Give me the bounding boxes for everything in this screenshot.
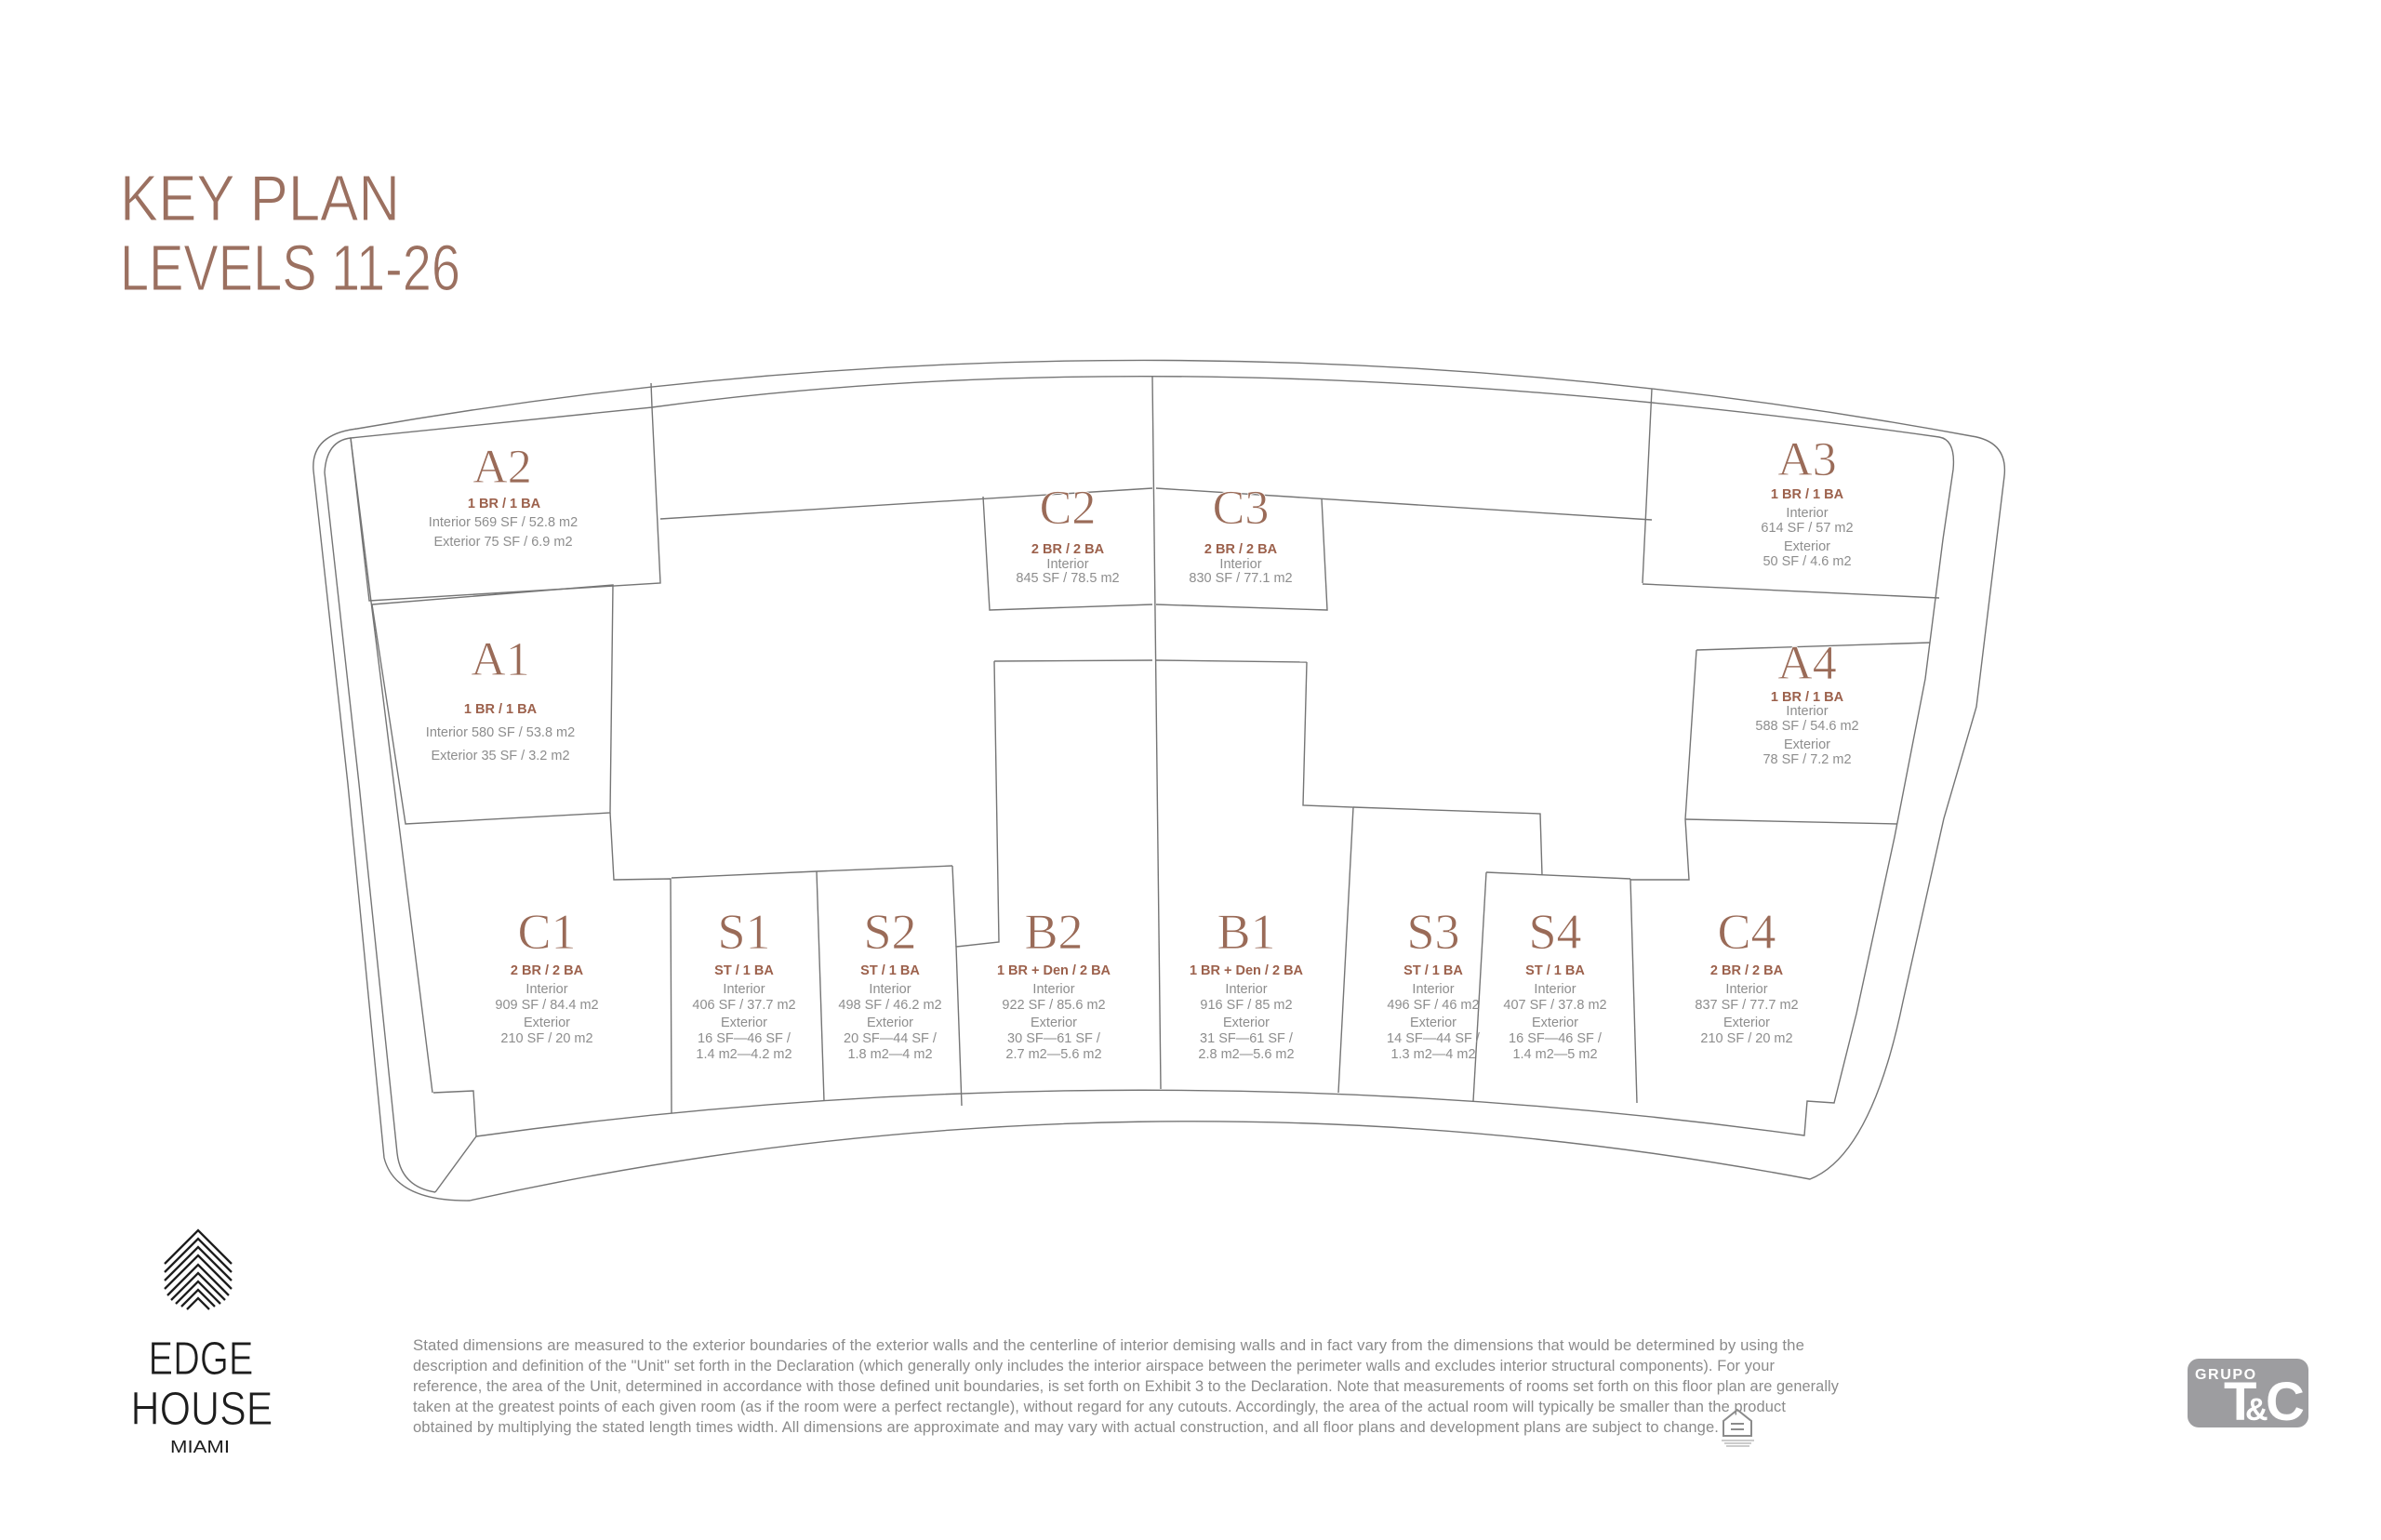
svg-text:Interior: Interior: [723, 982, 765, 997]
svg-text:Exterior: Exterior: [721, 1016, 767, 1030]
svg-text:C1: C1: [517, 904, 576, 960]
svg-text:2 BR / 2 BA: 2 BR / 2 BA: [1710, 963, 1784, 978]
svg-text:50 SF / 4.6 m2: 50 SF / 4.6 m2: [1762, 554, 1851, 569]
svg-text:B1: B1: [1217, 904, 1275, 960]
svg-text:1 BR / 1 BA: 1 BR / 1 BA: [468, 497, 541, 511]
svg-text:2.8 m2—5.6 m2: 2.8 m2—5.6 m2: [1198, 1047, 1294, 1062]
svg-text:Interior: Interior: [869, 982, 911, 997]
svg-text:1.4 m2—5 m2: 1.4 m2—5 m2: [1512, 1047, 1597, 1062]
svg-text:Exterior 75 SF / 6.9 m2: Exterior 75 SF / 6.9 m2: [433, 535, 572, 550]
svg-text:1 BR / 1 BA: 1 BR / 1 BA: [1771, 487, 1844, 502]
svg-text:A1: A1: [471, 633, 530, 686]
svg-text:S4: S4: [1528, 904, 1581, 960]
svg-text:614 SF / 57 m2: 614 SF / 57 m2: [1761, 521, 1853, 536]
svg-text:ST / 1 BA: ST / 1 BA: [1525, 963, 1585, 978]
svg-text:16 SF—46 SF /: 16 SF—46 SF /: [1509, 1031, 1603, 1046]
svg-text:Exterior 35 SF / 3.2 m2: Exterior 35 SF / 3.2 m2: [431, 749, 569, 763]
svg-text:498 SF / 46.2 m2: 498 SF / 46.2 m2: [838, 998, 941, 1013]
svg-text:HOUSE: HOUSE: [131, 1382, 273, 1435]
svg-text:C3: C3: [1213, 482, 1270, 535]
svg-text:Exterior: Exterior: [1031, 1016, 1077, 1030]
svg-text:Interior 569 SF / 52.8 m2: Interior 569 SF / 52.8 m2: [429, 515, 578, 530]
svg-text:830 SF / 77.1 m2: 830 SF / 77.1 m2: [1189, 571, 1292, 586]
svg-text:496 SF / 46 m2: 496 SF / 46 m2: [1387, 998, 1479, 1013]
svg-text:Exterior: Exterior: [1723, 1016, 1770, 1030]
svg-text:1 BR / 1 BA: 1 BR / 1 BA: [464, 702, 538, 717]
svg-text:Exterior: Exterior: [1223, 1016, 1270, 1030]
svg-text:2 BR / 2 BA: 2 BR / 2 BA: [1031, 542, 1105, 557]
svg-text:31 SF—61 SF /: 31 SF—61 SF /: [1200, 1031, 1294, 1046]
svg-text:1.3 m2—4 m2: 1.3 m2—4 m2: [1390, 1047, 1475, 1062]
svg-text:reference, the area of the Uni: reference, the area of the Unit, determi…: [413, 1378, 1840, 1395]
svg-text:20 SF—44 SF /: 20 SF—44 SF /: [844, 1031, 938, 1046]
svg-text:Stated dimensions are measured: Stated dimensions are measured to the ex…: [413, 1337, 1804, 1354]
svg-text:1 BR + Den / 2 BA: 1 BR + Den / 2 BA: [997, 963, 1111, 978]
svg-text:ST / 1 BA: ST / 1 BA: [1403, 963, 1463, 978]
svg-text:2.7 m2—5.6 m2: 2.7 m2—5.6 m2: [1005, 1047, 1101, 1062]
svg-text:Interior: Interior: [1219, 557, 1261, 572]
svg-text:Exterior: Exterior: [1410, 1016, 1457, 1030]
svg-text:14 SF—44 SF /: 14 SF—44 SF /: [1387, 1031, 1481, 1046]
svg-text:Interior: Interior: [525, 982, 567, 997]
svg-text:845 SF / 78.5 m2: 845 SF / 78.5 m2: [1016, 571, 1119, 586]
svg-text:C2: C2: [1040, 482, 1097, 535]
svg-text:MIAMI: MIAMI: [170, 1438, 230, 1456]
svg-text:Interior 580 SF / 53.8 m2: Interior 580 SF / 53.8 m2: [426, 725, 575, 740]
svg-text:916 SF / 85 m2: 916 SF / 85 m2: [1200, 998, 1292, 1013]
svg-text:1 BR + Den / 2 BA: 1 BR + Den / 2 BA: [1190, 963, 1304, 978]
svg-text:A3: A3: [1777, 433, 1837, 486]
svg-text:2 BR / 2 BA: 2 BR / 2 BA: [1204, 542, 1278, 557]
svg-text:C: C: [2266, 1372, 2305, 1432]
svg-text:taken at the greatest points o: taken at the greatest points of each giv…: [413, 1399, 1786, 1415]
svg-text:909 SF / 84.4 m2: 909 SF / 84.4 m2: [495, 998, 598, 1013]
svg-text:Interior: Interior: [1534, 982, 1576, 997]
svg-text:EDGE: EDGE: [149, 1332, 254, 1385]
svg-text:210 SF / 20 m2: 210 SF / 20 m2: [500, 1031, 592, 1046]
svg-text:ST / 1 BA: ST / 1 BA: [714, 963, 774, 978]
svg-text:Interior: Interior: [1725, 982, 1767, 997]
svg-text:Interior: Interior: [1046, 557, 1088, 572]
svg-text:837 SF / 77.7 m2: 837 SF / 77.7 m2: [1695, 998, 1798, 1013]
svg-text:A2: A2: [472, 441, 532, 494]
svg-text:Exterior: Exterior: [867, 1016, 913, 1030]
svg-text:LEVELS 11-26: LEVELS 11-26: [120, 232, 460, 304]
svg-text:KEY PLAN: KEY PLAN: [120, 162, 400, 234]
svg-text:406 SF / 37.7 m2: 406 SF / 37.7 m2: [692, 998, 795, 1013]
svg-text:210 SF / 20 m2: 210 SF / 20 m2: [1700, 1031, 1792, 1046]
svg-text:S3: S3: [1406, 904, 1459, 960]
svg-text:1.8 m2—4 m2: 1.8 m2—4 m2: [847, 1047, 932, 1062]
svg-text:&: &: [2245, 1392, 2268, 1427]
svg-text:A4: A4: [1777, 637, 1837, 690]
svg-text:Exterior: Exterior: [1784, 737, 1830, 752]
svg-text:Interior: Interior: [1786, 704, 1828, 719]
svg-text:Interior: Interior: [1032, 982, 1074, 997]
svg-text:30 SF—61 SF /: 30 SF—61 SF /: [1007, 1031, 1101, 1046]
svg-text:Exterior: Exterior: [524, 1016, 570, 1030]
svg-text:Interior: Interior: [1412, 982, 1454, 997]
svg-text:922 SF / 85.6 m2: 922 SF / 85.6 m2: [1002, 998, 1105, 1013]
svg-text:C4: C4: [1717, 904, 1776, 960]
svg-text:obtained by multiplying the st: obtained by multiplying the stated lengt…: [413, 1419, 1719, 1436]
svg-text:78 SF / 7.2 m2: 78 SF / 7.2 m2: [1762, 752, 1851, 767]
svg-text:407 SF / 37.8 m2: 407 SF / 37.8 m2: [1503, 998, 1606, 1013]
svg-text:B2: B2: [1024, 904, 1083, 960]
svg-text:Interior: Interior: [1786, 506, 1828, 521]
svg-text:588 SF / 54.6 m2: 588 SF / 54.6 m2: [1755, 719, 1858, 734]
svg-text:ST / 1 BA: ST / 1 BA: [860, 963, 920, 978]
svg-text:16 SF—46 SF /: 16 SF—46 SF /: [698, 1031, 791, 1046]
svg-text:Exterior: Exterior: [1532, 1016, 1578, 1030]
svg-text:S2: S2: [863, 904, 916, 960]
svg-text:Interior: Interior: [1225, 982, 1267, 997]
svg-text:1.4 m2—4.2 m2: 1.4 m2—4.2 m2: [696, 1047, 791, 1062]
svg-text:1 BR / 1 BA: 1 BR / 1 BA: [1771, 690, 1844, 705]
svg-text:2 BR / 2 BA: 2 BR / 2 BA: [511, 963, 584, 978]
svg-text:S1: S1: [717, 904, 770, 960]
svg-text:description and definition of: description and definition of the "Unit"…: [413, 1358, 1775, 1374]
svg-text:Exterior: Exterior: [1784, 539, 1830, 554]
